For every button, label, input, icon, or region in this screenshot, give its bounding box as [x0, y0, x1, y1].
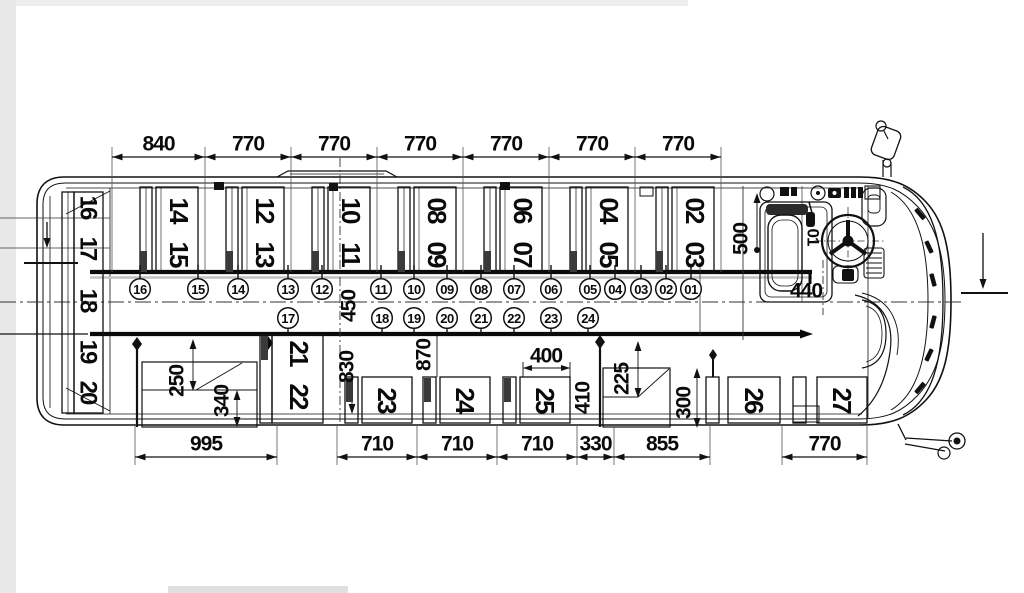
- right-datum-arrow: [980, 279, 987, 289]
- seatbelt-anchor: [424, 378, 431, 402]
- dimension-label: 770: [404, 133, 436, 156]
- dimension-label: 400: [530, 345, 562, 368]
- dash-vent: [844, 187, 849, 198]
- glass-mark: [924, 348, 934, 362]
- seat-number: 25: [530, 388, 560, 414]
- dimension-label: 770: [232, 133, 264, 156]
- glass-mark: [924, 240, 934, 254]
- rear-bench-seat: 1617181920: [62, 192, 103, 413]
- seat-number: 06: [508, 198, 538, 224]
- seat-number: 16: [75, 196, 102, 220]
- seatbelt-anchor: [570, 251, 577, 272]
- gear-lever: [806, 212, 815, 227]
- dash-switch: [791, 187, 797, 196]
- seat-number: 09: [422, 242, 452, 268]
- seat-number: 15: [164, 242, 194, 268]
- wall-fixture: [214, 182, 224, 190]
- dimension-label: 450: [338, 290, 361, 322]
- seat-number: 11: [336, 242, 366, 267]
- seat-position-number: 17: [281, 311, 295, 326]
- seat-position-number: 11: [375, 282, 388, 297]
- driver-seat-label: 01: [804, 229, 823, 246]
- seat-position-number: 03: [634, 282, 648, 297]
- seat-position-number: 01: [684, 282, 698, 297]
- bottom-dimension-chain: 995710710710330855770: [135, 424, 867, 465]
- seat-position-number: 22: [507, 311, 521, 326]
- seat-position-number: 14: [231, 282, 246, 297]
- seat-number: 19: [75, 340, 102, 364]
- seat-position-number: 10: [407, 282, 421, 297]
- dimension-label: 250: [166, 365, 189, 397]
- seat-position-number: 15: [191, 282, 205, 297]
- dimension-label: 995: [190, 433, 223, 456]
- seat-position-number: 09: [440, 282, 454, 297]
- seat-position-number: 19: [407, 311, 421, 326]
- seat-position-number: 21: [474, 311, 488, 326]
- dimension-label: 225: [611, 362, 634, 395]
- seat-number: 07: [508, 242, 538, 268]
- seatbelt-anchor: [312, 251, 319, 272]
- seat-position-number: 04: [608, 282, 623, 297]
- seat-position-number: 18: [375, 311, 389, 326]
- dimension-label: 830: [336, 351, 359, 383]
- bus-floor-plan: 01: [0, 0, 1024, 593]
- seat-position-number: 20: [440, 311, 454, 326]
- dimension-label: 500: [730, 223, 753, 255]
- seat-position-number: 05: [583, 282, 597, 297]
- seatbelt-anchor: [226, 251, 233, 272]
- dimension-label: 770: [808, 433, 840, 456]
- seat-number: 26: [739, 388, 769, 414]
- seat-number: 17: [75, 237, 102, 261]
- seat-number: 05: [594, 242, 624, 268]
- seat-markers-row2: 1718192021222324: [278, 308, 599, 335]
- seat-number: 22: [284, 384, 314, 410]
- seat-number: 18: [75, 289, 102, 313]
- dimension-label: 710: [441, 433, 473, 456]
- seat-number: 12: [250, 198, 280, 224]
- seat-position-number: 07: [507, 282, 521, 297]
- seatbelt-anchor: [140, 251, 147, 272]
- seat-position-number: 08: [474, 282, 488, 297]
- dimension-label: 770: [490, 133, 522, 156]
- dash-gauge: [760, 187, 774, 201]
- seat-position-number: 24: [581, 311, 596, 326]
- seatbelt-anchor: [261, 336, 268, 360]
- left-datum-arrow: [44, 238, 51, 248]
- seatbelt-anchor: [656, 251, 663, 272]
- dash-switch: [780, 187, 789, 196]
- seat-position-number: 16: [133, 282, 147, 297]
- dimension-label: 330: [579, 433, 611, 456]
- windshield: [891, 187, 943, 415]
- dash-vent: [851, 187, 856, 198]
- seat-number: 08: [422, 198, 452, 224]
- top-dimension-chain: 840770770770770770770: [112, 133, 721, 273]
- seat-number: 21: [284, 341, 314, 367]
- seatbelt-anchor: [504, 378, 511, 402]
- seat-position-number: 02: [659, 282, 673, 297]
- dimension-label: 340: [211, 385, 234, 417]
- seat-number: 20: [75, 381, 102, 405]
- glass-mark: [929, 315, 937, 329]
- front-pillar-trim: [862, 188, 886, 368]
- seat-number: 02: [680, 198, 710, 224]
- seat-number: 10: [336, 198, 366, 224]
- dimension-label: 710: [521, 433, 553, 456]
- side-mirror-arm: [898, 424, 965, 459]
- seat-position-number: 23: [544, 311, 558, 326]
- dimension-label: 855: [646, 433, 679, 456]
- seat-position-number: 12: [315, 282, 329, 297]
- dimension-label: 440: [790, 280, 822, 303]
- seat-back: [793, 377, 806, 423]
- dimension-label: 840: [142, 133, 174, 156]
- glass-mark: [929, 273, 937, 287]
- dimension-label: 770: [576, 133, 608, 156]
- seatbelt-anchor: [398, 251, 405, 272]
- entry-steps-rear: [132, 337, 257, 427]
- seat-number: 13: [250, 242, 280, 268]
- front-mirror: [870, 121, 903, 177]
- seat-number: 27: [827, 388, 857, 414]
- seat-position-number: 06: [544, 282, 558, 297]
- dimension-label: 770: [318, 133, 350, 156]
- seat-position-number: 13: [281, 282, 295, 297]
- dimension-label: 870: [413, 339, 436, 371]
- seat-number: 14: [164, 198, 194, 225]
- wall-fixture: [640, 187, 653, 196]
- roof-hatch: [277, 171, 397, 177]
- dimension-label: 300: [673, 387, 696, 419]
- driver-seat-back: [766, 204, 808, 215]
- seat-number: 24: [450, 388, 480, 415]
- dimension-label: 410: [572, 382, 595, 414]
- seatbelt-anchor: [484, 251, 491, 272]
- seat-back: [706, 377, 719, 423]
- seat-number: 04: [594, 198, 624, 225]
- forward-facing-bench-seats: 1415121310110809060704050203: [140, 187, 714, 273]
- dimension-label: 710: [361, 433, 393, 456]
- dimension-label: 770: [662, 133, 694, 156]
- seat-number: 23: [372, 388, 402, 414]
- seat-number: 03: [680, 242, 710, 268]
